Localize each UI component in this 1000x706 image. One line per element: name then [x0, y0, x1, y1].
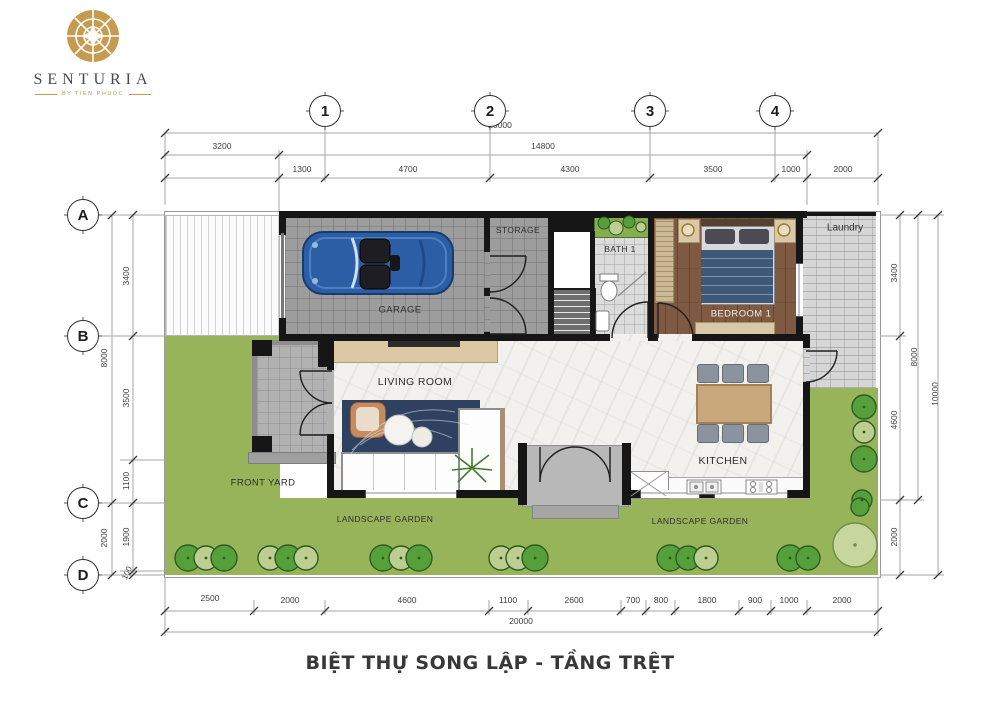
bed-pillow	[739, 229, 769, 244]
dim-top-3500: 3500	[704, 164, 723, 174]
entry-step	[532, 505, 619, 519]
wall-bath-west	[590, 231, 595, 341]
garage-floor	[285, 217, 488, 335]
nightstand	[678, 219, 700, 243]
nightstand	[774, 219, 796, 243]
grid-row-c: C	[67, 487, 99, 519]
wall-north	[279, 211, 807, 218]
wall-north-laundry	[807, 212, 876, 216]
kitchen-window-1	[640, 490, 700, 498]
grid-row-b: B	[67, 320, 99, 352]
label-bath1: BATH 1	[604, 244, 636, 254]
label-storage: STORAGE	[496, 225, 540, 235]
dining-chair	[747, 424, 769, 443]
floor-plan-page: SENTURIA BY TIEN PHUOC	[0, 0, 1000, 706]
dim-top-1300: 1300	[293, 164, 312, 174]
dim-bottom-1000: 1000	[780, 595, 799, 605]
wall-block-bath-north	[554, 211, 594, 232]
storage-door-gap-1	[484, 252, 490, 288]
tv-screen	[388, 340, 460, 347]
driveway	[165, 215, 280, 336]
kitchen-window-2	[714, 490, 788, 498]
dim-left-3400: 3400	[121, 267, 131, 286]
sofa-chaise	[458, 408, 505, 498]
grid-row-a: A	[67, 199, 99, 231]
dim-top-14800: 14800	[531, 141, 555, 151]
right-garden-area	[806, 388, 878, 575]
bath-door-gap	[610, 334, 648, 341]
bath-planter	[594, 216, 652, 238]
dim-bottom-2000b: 2000	[833, 595, 852, 605]
vestibule-wall-right	[622, 443, 631, 505]
dim-right-10000: 10000	[930, 382, 940, 406]
label-laundry: Laundry	[827, 223, 863, 234]
bedroom-window	[796, 263, 803, 317]
grid-column-1: 1	[309, 95, 341, 127]
porch-door-gap	[327, 370, 334, 434]
mandala-logo-icon	[18, 8, 168, 64]
laundry-floor	[802, 215, 876, 388]
label-bedroom1: BEDROOM 1	[711, 309, 772, 320]
grid-column-4: 4	[759, 95, 791, 127]
dim-bottom-2500: 2500	[201, 593, 220, 603]
grid-row-d: D	[67, 559, 99, 591]
wall-bath-bedroom	[648, 211, 654, 335]
armchair-cushion	[356, 407, 379, 431]
dining-chair	[747, 364, 769, 383]
dim-bottom-700: 700	[626, 595, 640, 605]
dining-chair	[697, 364, 719, 383]
dining-chair	[697, 424, 719, 443]
bottom-garden-area	[165, 498, 878, 575]
grid-column-3: 3	[634, 95, 666, 127]
dining-table	[696, 384, 772, 424]
bed-blanket	[701, 250, 773, 303]
wall-mid-horizontal	[279, 334, 810, 341]
dim-top-3200: 3200	[213, 141, 232, 151]
label-kitchen: KITCHEN	[699, 455, 748, 467]
garage-door-line	[281, 233, 284, 321]
dim-bottom-900: 900	[748, 595, 762, 605]
brand-name: SENTURIA	[18, 71, 168, 89]
dim-top-1000: 1000	[782, 164, 801, 174]
dim-right-2000: 2000	[889, 528, 899, 547]
dim-top-4300: 4300	[561, 164, 580, 174]
wall-west-upper	[279, 211, 286, 235]
living-window	[365, 490, 457, 498]
label-garage: GARAGE	[378, 305, 421, 316]
bedroom-door-gap	[658, 334, 692, 341]
patio-door-gap	[803, 348, 810, 382]
porch-pillar	[252, 436, 272, 452]
dim-bottom-4600: 4600	[398, 595, 417, 605]
dim-right-8000: 8000	[909, 348, 919, 367]
brand-tagline: BY TIEN PHUOC	[18, 91, 168, 97]
entry-vestibule	[522, 445, 629, 507]
dim-right-3400: 3400	[889, 264, 899, 283]
dining-chair	[722, 424, 744, 443]
label-landscape-garden-right: LANDSCAPE GARDEN	[652, 516, 749, 526]
wardrobe	[655, 219, 674, 303]
grid-column-2: 2	[474, 95, 506, 127]
dining-chair	[722, 364, 744, 383]
dim-left-1900: 1900	[121, 528, 131, 547]
dim-bottom-2000a: 2000	[281, 595, 300, 605]
dim-left-2000: 2000	[99, 529, 109, 548]
dim-bottom-1800: 1800	[698, 595, 717, 605]
brand-logo: SENTURIA BY TIEN PHUOC	[18, 8, 168, 97]
bed-pillow	[705, 229, 735, 244]
dim-bottom-2600: 2600	[565, 595, 584, 605]
dim-bottom-1100: 1100	[499, 595, 517, 605]
porch-pillar	[318, 340, 332, 367]
dim-bottom-total: 20000	[509, 616, 533, 626]
page-title: BIỆT THỰ SONG LẬP - TẦNG TRỆT	[305, 652, 674, 674]
dim-left-1100: 1100	[121, 472, 131, 490]
storage-door-gap-2	[484, 296, 490, 332]
label-landscape-garden-left: LANDSCAPE GARDEN	[337, 514, 434, 524]
label-living-room: LIVING ROOM	[378, 376, 452, 388]
dim-right-4600: 4600	[889, 411, 899, 430]
dim-bottom-800: 800	[654, 595, 668, 605]
label-front-yard: FRONT YARD	[231, 478, 296, 489]
dim-left-8000: 8000	[99, 349, 109, 368]
dim-left-100: 100	[120, 565, 134, 581]
dim-left-3500: 3500	[121, 389, 131, 408]
dim-top-4700: 4700	[399, 164, 418, 174]
porch-pillar	[252, 340, 272, 356]
dim-top-2000: 2000	[834, 164, 853, 174]
porch-step	[248, 452, 336, 464]
vestibule-wall-left	[518, 443, 527, 505]
